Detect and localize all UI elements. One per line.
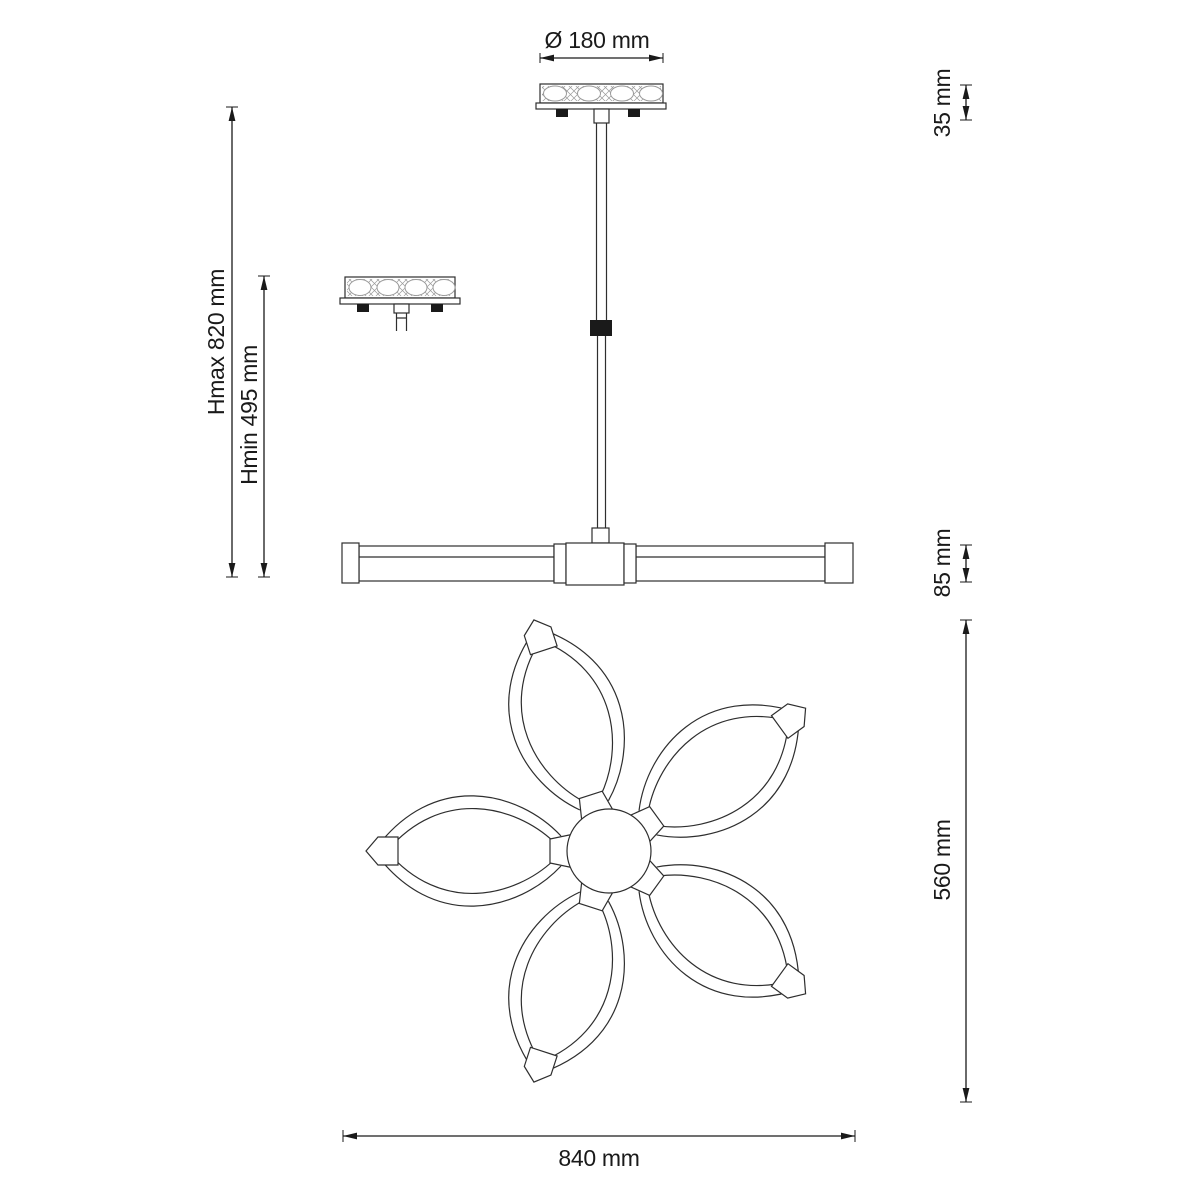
flower-hub xyxy=(567,809,651,893)
crystal-oval xyxy=(611,86,634,101)
canopy-foot-right xyxy=(628,109,640,117)
rod-adjuster xyxy=(590,320,612,336)
flower-top-view xyxy=(366,603,838,1099)
crystal-oval xyxy=(377,280,399,296)
dimension-bar-height: 85 mm xyxy=(929,529,972,598)
ceiling-canopy-front-view xyxy=(536,84,666,123)
suspension-rod xyxy=(590,123,612,543)
petal-bottom xyxy=(481,867,650,1099)
dimension-fixture-width: 840 mm xyxy=(343,1130,855,1171)
bar-right-tube xyxy=(636,546,825,581)
crystal-oval xyxy=(405,280,427,296)
crystal-oval xyxy=(349,280,371,296)
fixture-width-label: 840 mm xyxy=(558,1145,639,1171)
lamp-bar-side-view xyxy=(342,543,853,585)
crystal-oval xyxy=(640,86,663,101)
small-canopy-foot-left xyxy=(357,304,369,312)
dimension-canopy-diameter: Ø 180 mm xyxy=(540,27,663,63)
canopy-height-label: 35 mm xyxy=(929,69,955,138)
dimension-fixture-depth: 560 mm xyxy=(929,620,972,1102)
dimension-canopy-height: 35 mm xyxy=(929,69,972,138)
technical-drawing-sheet: Ø 180 mm 35 mm Hmax 820 mm Hmin 495 mm 8… xyxy=(0,0,1200,1200)
bar-left-tube xyxy=(359,546,554,581)
height-max-label: Hmax 820 mm xyxy=(203,269,229,415)
fixture-depth-label: 560 mm xyxy=(929,819,955,900)
rod-top-joint xyxy=(594,109,609,123)
bar-height-label: 85 mm xyxy=(929,529,955,598)
dimension-height-min: Hmin 495 mm xyxy=(236,276,270,577)
canopy-diameter-label: Ø 180 mm xyxy=(545,27,650,53)
canopy-foot-left xyxy=(556,109,568,117)
lamp-dimension-diagram: Ø 180 mm 35 mm Hmax 820 mm Hmin 495 mm 8… xyxy=(0,0,1200,1200)
petal-left xyxy=(366,796,574,906)
dimension-height-max: Hmax 820 mm xyxy=(203,107,238,577)
bar-left-end-cap xyxy=(342,543,359,583)
height-min-label: Hmin 495 mm xyxy=(236,345,262,485)
bar-left-connector xyxy=(554,544,566,583)
rod-upper-segment xyxy=(597,123,607,320)
small-rod-stub xyxy=(397,313,407,331)
bar-right-end-cap xyxy=(825,543,853,583)
small-canopy-base-plate xyxy=(340,298,460,304)
crystal-oval xyxy=(433,280,455,296)
canopy-base-plate xyxy=(536,103,666,109)
rod-lower-segment xyxy=(598,336,606,528)
small-canopy-foot-right xyxy=(431,304,443,312)
canopy-hmin-view xyxy=(340,277,460,331)
crystal-oval xyxy=(544,86,567,101)
petal-top xyxy=(481,603,650,835)
crystal-oval xyxy=(578,86,601,101)
rod-bar-connector xyxy=(592,528,609,543)
bar-right-connector xyxy=(624,544,636,583)
bar-center-block xyxy=(566,543,624,585)
small-rod-joint xyxy=(394,304,409,313)
